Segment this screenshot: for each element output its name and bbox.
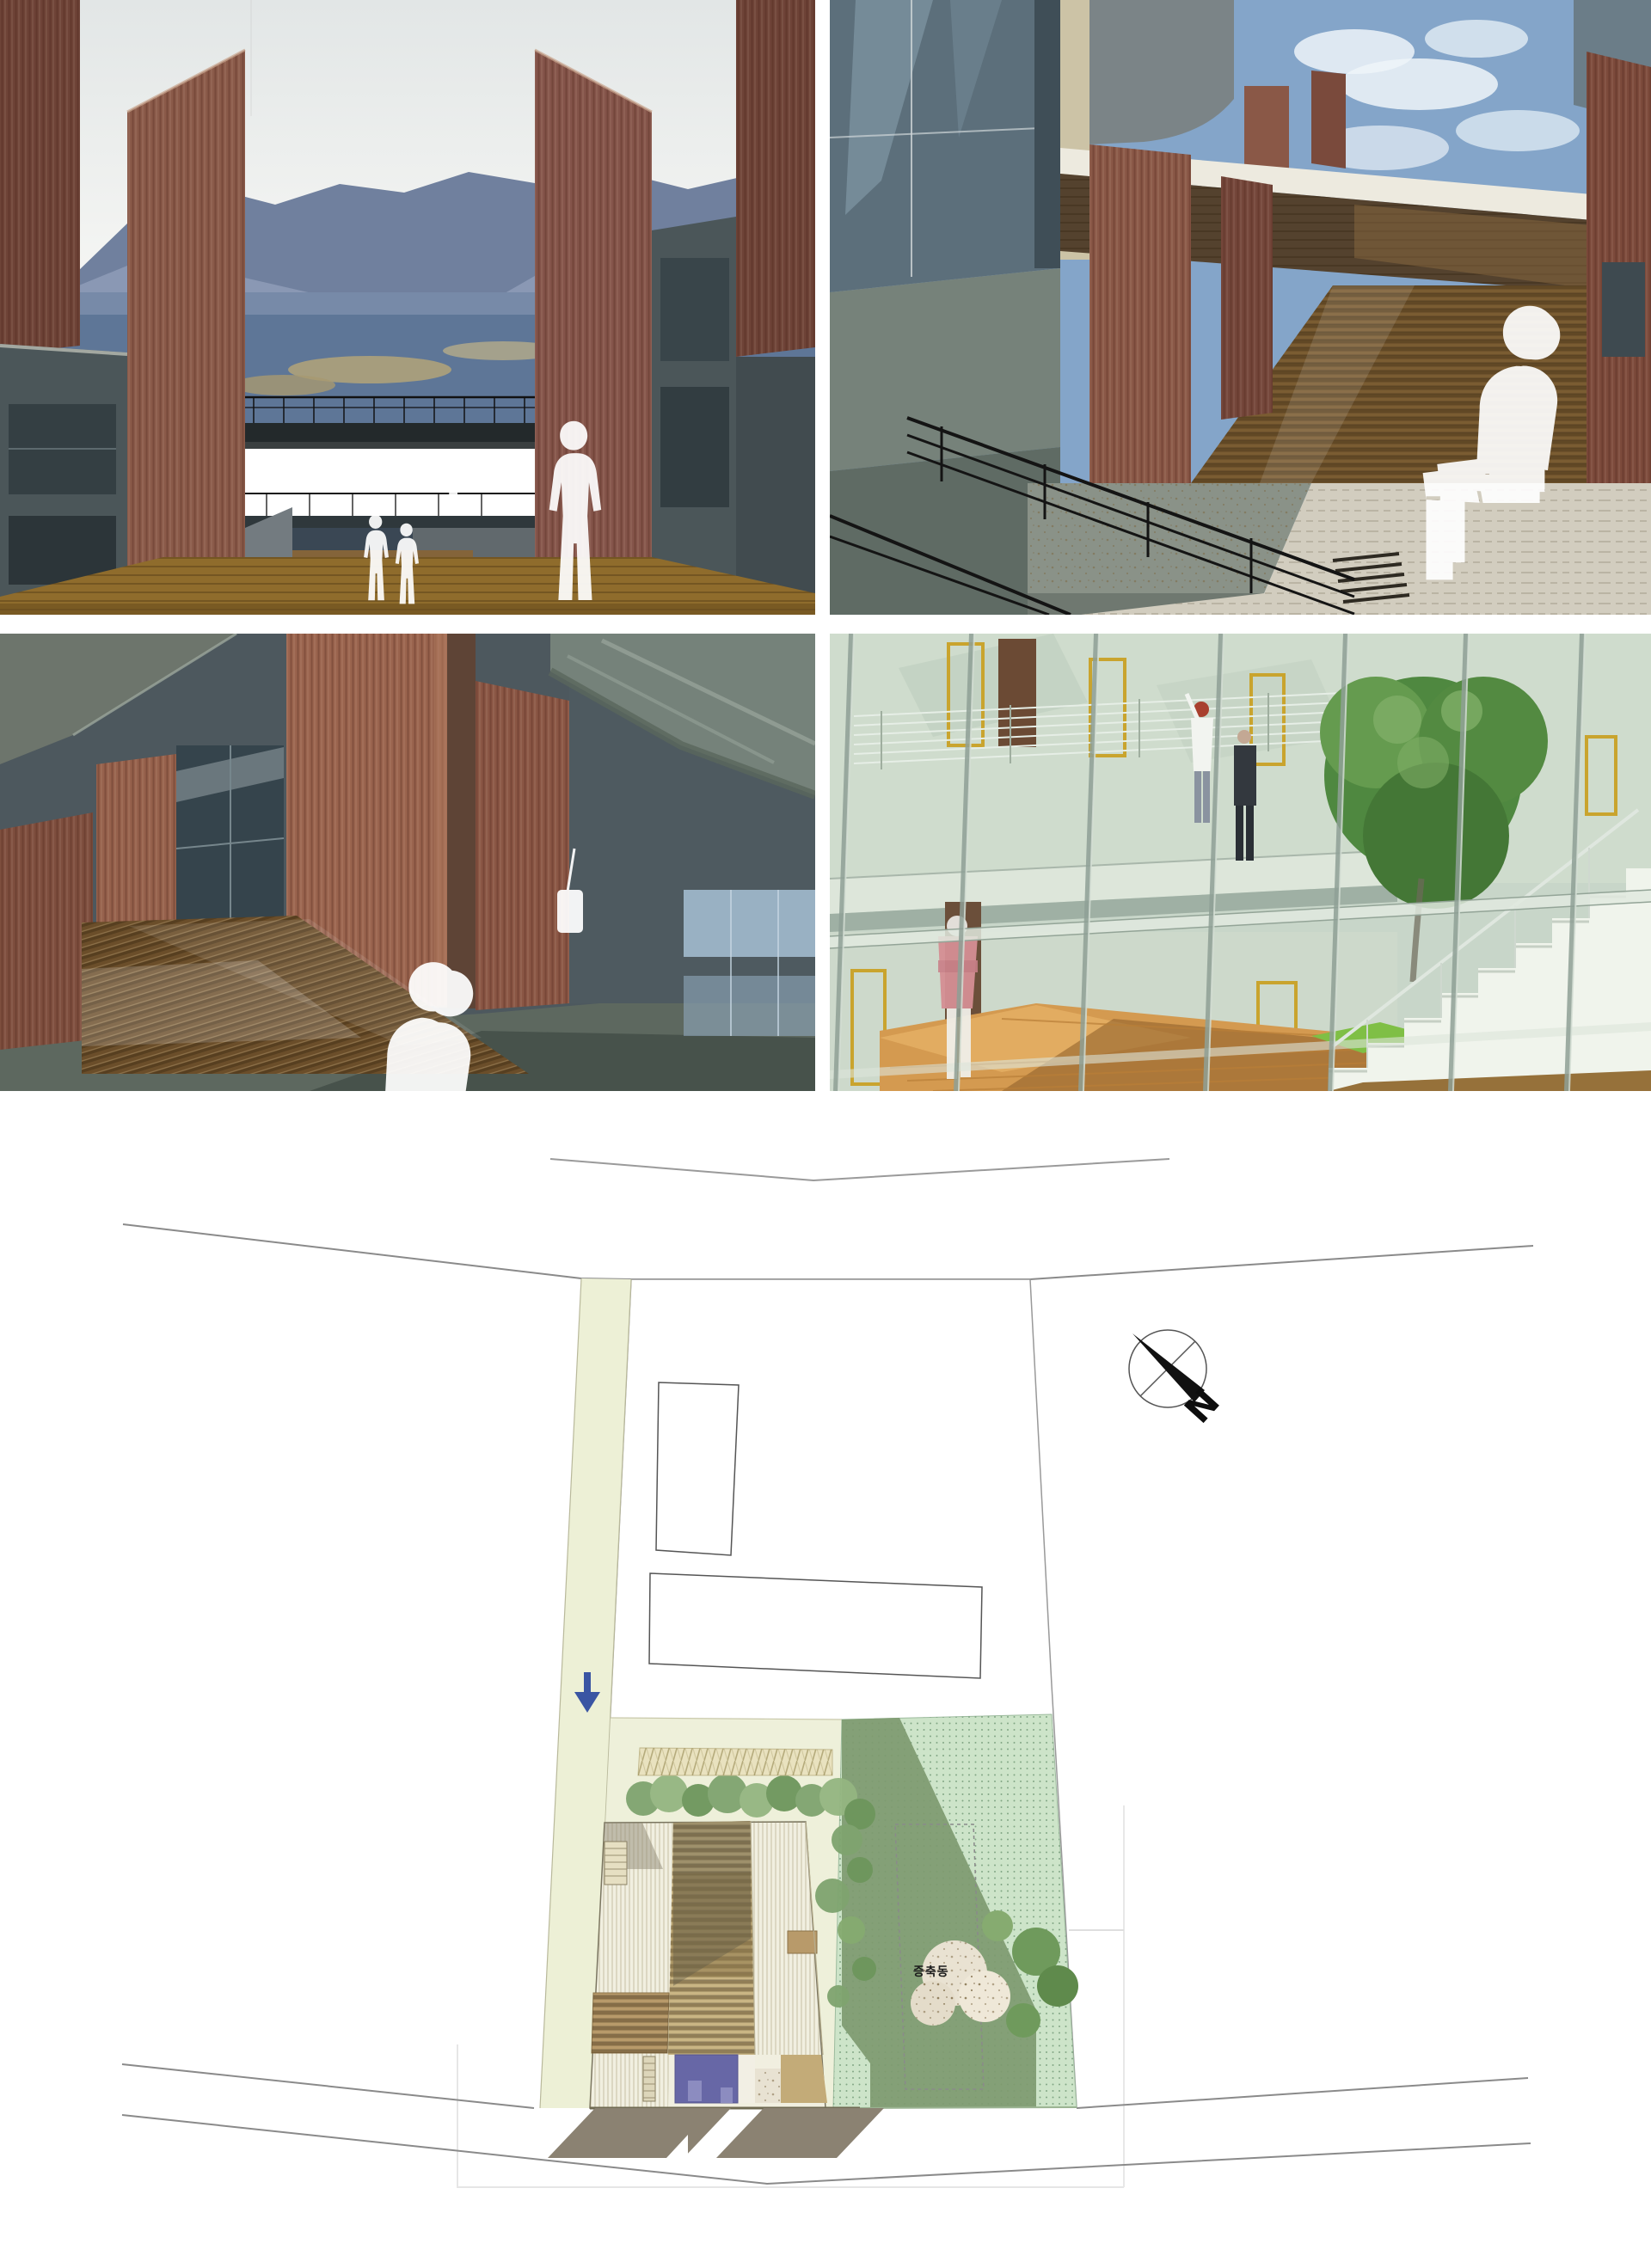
site-plan: N 증축동 — [0, 1118, 1651, 2268]
presentation-board: N 증축동 — [0, 0, 1651, 2268]
amphitheater-stairs-image — [830, 0, 1651, 615]
courtyard-lake-view-image — [0, 0, 815, 615]
left-timber-slab — [127, 50, 245, 615]
render-amphitheater-stairs — [830, 0, 1651, 615]
render-steps-under-canopy — [0, 634, 815, 1091]
site-plan-drawing: N 증축동 — [0, 1118, 1651, 2268]
render-courtyard-lake-view — [0, 0, 815, 615]
glass-atrium-image — [830, 634, 1651, 1091]
right-timber-slab — [535, 50, 652, 615]
steps-under-canopy-image — [0, 634, 815, 1091]
render-glass-atrium — [830, 634, 1651, 1091]
lawn — [833, 1714, 1077, 2108]
hatched-band — [638, 1748, 832, 1775]
building-label: 증축동 — [913, 1965, 949, 1979]
